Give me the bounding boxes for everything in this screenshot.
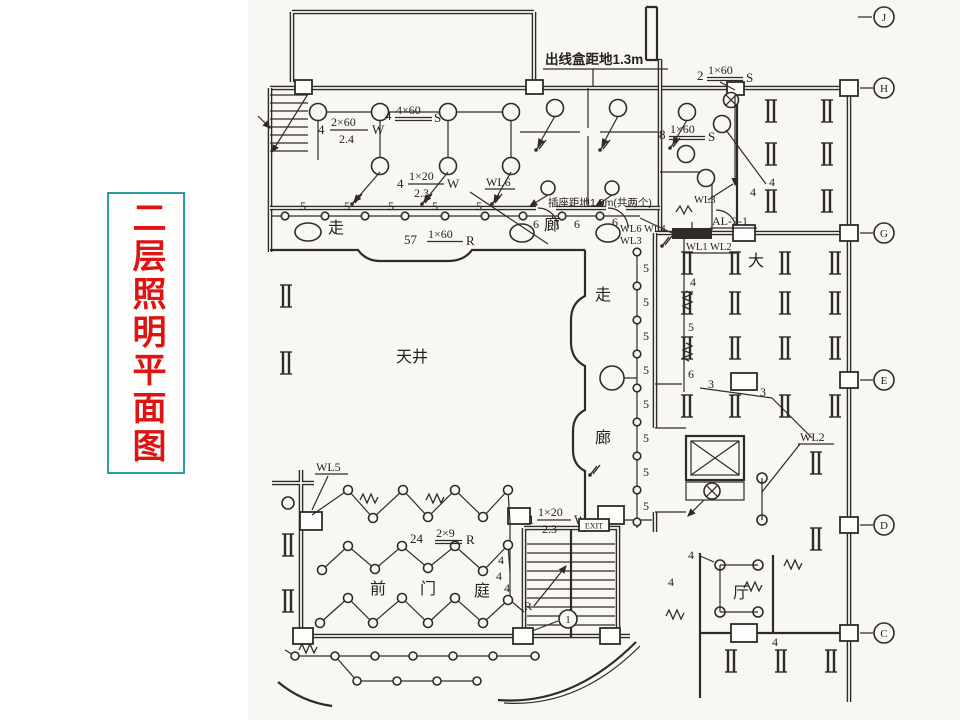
svg-text:1: 1 xyxy=(528,512,535,527)
svg-text:2×60: 2×60 xyxy=(331,115,356,129)
fixture-label-l2: 4 4×60 S xyxy=(385,103,441,125)
circuit-wl6: WL6 xyxy=(486,175,511,189)
circuit-wl1-wl2: WL1 WL2 xyxy=(686,242,732,253)
circuit-wl5: WL5 xyxy=(316,460,341,474)
count: 5 xyxy=(643,431,649,445)
note-socket: 插座距地1.9m(共两个) xyxy=(548,196,652,209)
svg-text:57: 57 xyxy=(404,232,418,247)
circuit-r: R xyxy=(524,599,532,613)
count: 4 xyxy=(688,548,694,562)
grid-label-g: G xyxy=(880,228,888,240)
svg-text:1×20: 1×20 xyxy=(409,169,434,183)
svg-text:R: R xyxy=(466,532,475,547)
count: 4 xyxy=(769,175,775,189)
svg-text:4: 4 xyxy=(318,122,325,137)
room-da: 大 xyxy=(748,252,764,270)
count: 5 xyxy=(432,199,438,213)
fan-icon xyxy=(724,93,739,108)
elevator-shaft xyxy=(686,436,744,516)
circuit-wl6-wl4: WL6 WL4 xyxy=(620,224,666,235)
circuit-wl2: WL2 xyxy=(800,430,825,444)
grid-label-e: E xyxy=(881,375,888,387)
svg-text:S: S xyxy=(434,110,441,125)
svg-text:2×9: 2×9 xyxy=(436,526,455,540)
count: 6 xyxy=(574,217,580,231)
svg-text:4: 4 xyxy=(385,108,392,123)
note-outlet-box: 出线盒距地1.3m xyxy=(545,51,643,67)
room-men: 门 xyxy=(420,580,436,598)
svg-text:2.3: 2.3 xyxy=(414,186,429,200)
count: 4 xyxy=(690,275,696,289)
count: 5 xyxy=(388,199,394,213)
fixture-label-l6: 57 1×60 R xyxy=(404,227,475,248)
count: 4 xyxy=(750,185,756,199)
count: 4 xyxy=(772,635,778,649)
room-qian: 前 xyxy=(370,580,386,598)
count: 3 xyxy=(760,385,766,399)
svg-text:2.3: 2.3 xyxy=(542,522,557,536)
slide: 二层照明平面图 xyxy=(0,0,960,720)
fixture-label-l5: 8 1×60 S xyxy=(659,122,715,144)
svg-text:2: 2 xyxy=(697,68,704,83)
room-corridor-lang: 廊 xyxy=(544,216,560,234)
svg-text:2.4: 2.4 xyxy=(339,132,354,146)
count: 5 xyxy=(476,199,482,213)
count: 4 xyxy=(498,553,504,567)
svg-text:24: 24 xyxy=(410,531,424,546)
count: 6 xyxy=(533,217,539,231)
count: 6 xyxy=(612,215,618,229)
svg-text:W: W xyxy=(447,176,460,191)
count: 5 xyxy=(643,329,649,343)
room-ting: 厅 xyxy=(733,585,749,602)
circuit-wl3: WL3 xyxy=(620,236,642,247)
circuit-al-2-1: AL-2-1 xyxy=(712,214,748,228)
count: 5 xyxy=(643,295,649,309)
svg-text:1×60: 1×60 xyxy=(670,122,695,136)
room-corridor2-lang: 廊 xyxy=(595,429,611,447)
room-corridor2-zou: 走 xyxy=(595,286,611,304)
floor-plan: J H G E D C 1 出线盒距地1.3m 插座距地1.9m(共两个) 4 … xyxy=(0,0,960,720)
svg-text:R: R xyxy=(466,233,475,248)
count: 5 xyxy=(688,320,694,334)
distribution-board-al-2-1 xyxy=(672,206,712,239)
svg-text:S: S xyxy=(708,129,715,144)
count: 6 xyxy=(688,367,694,381)
svg-text:1×20: 1×20 xyxy=(538,505,563,519)
count: 5 xyxy=(344,199,350,213)
room-tianjing: 天井 xyxy=(396,348,428,366)
svg-text:4: 4 xyxy=(397,176,404,191)
svg-text:W: W xyxy=(372,122,385,137)
room-corridor-zou: 走 xyxy=(328,219,344,237)
wire-break-marks xyxy=(299,291,802,653)
stairs-top-left xyxy=(258,94,308,152)
count: 5 xyxy=(643,465,649,479)
count: 4 xyxy=(504,581,510,595)
count: 5 xyxy=(643,363,649,377)
grid-label-d: D xyxy=(880,520,888,532)
room-tingyuan: 庭 xyxy=(474,582,490,600)
count: 4 xyxy=(496,569,502,583)
count: 5 xyxy=(643,499,649,513)
svg-text:1×60: 1×60 xyxy=(428,227,453,241)
grid-label-1: 1 xyxy=(565,614,571,626)
exit-sign: EXIT xyxy=(585,522,603,531)
count: 5 xyxy=(300,199,306,213)
svg-text:1×60: 1×60 xyxy=(708,63,733,77)
count: 4 xyxy=(668,575,674,589)
grid-label-j: J xyxy=(882,12,887,24)
circuit-wl3-upper: WL3 xyxy=(694,195,716,206)
svg-text:8: 8 xyxy=(659,127,666,142)
grid-label-c: C xyxy=(880,628,887,640)
svg-text:S: S xyxy=(746,70,753,85)
count: 5 xyxy=(643,261,649,275)
count: 3 xyxy=(708,377,714,391)
fixture-label-l7: 24 2×9 R xyxy=(410,526,475,547)
count: 5 xyxy=(643,397,649,411)
fan-icon xyxy=(704,483,720,499)
svg-text:4×60: 4×60 xyxy=(396,103,421,117)
grid-label-h: H xyxy=(880,83,888,95)
